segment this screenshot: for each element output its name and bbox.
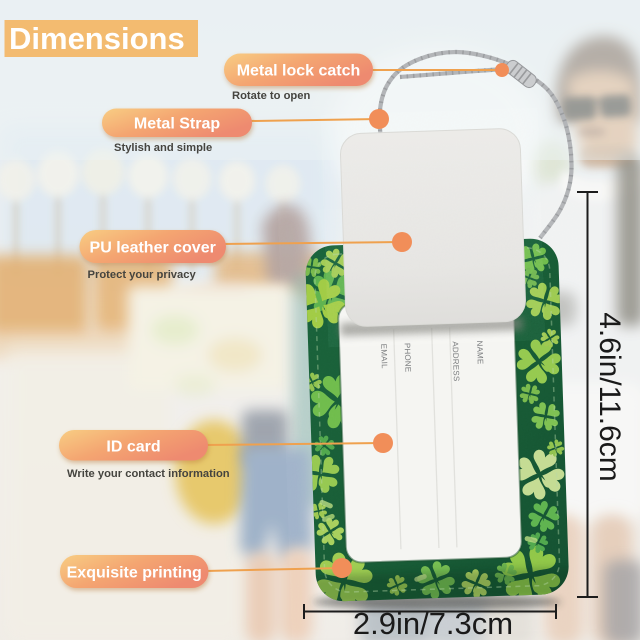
svg-text:Rotate to open: Rotate to open [232, 90, 310, 102]
svg-text:Exquisite printing: Exquisite printing [67, 565, 202, 582]
svg-text:2.9in/7.3cm: 2.9in/7.3cm [353, 606, 513, 640]
svg-text:Write your contact information: Write your contact information [67, 468, 230, 480]
svg-text:NAME: NAME [475, 340, 485, 364]
svg-text:ADDRESS: ADDRESS [451, 341, 461, 381]
svg-text:Stylish and simple: Stylish and simple [114, 142, 212, 154]
svg-text:EMAIL: EMAIL [379, 344, 389, 370]
svg-text:Protect your privacy: Protect your privacy [88, 269, 197, 281]
svg-text:4.6in/11.6cm: 4.6in/11.6cm [593, 312, 626, 482]
svg-text:Dimensions: Dimensions [9, 21, 185, 56]
svg-text:Metal lock catch: Metal lock catch [237, 63, 361, 80]
svg-text:Metal Strap: Metal Strap [134, 116, 220, 133]
svg-text:PU leather cover: PU leather cover [90, 240, 216, 257]
svg-text:ID card: ID card [106, 439, 160, 456]
svg-text:PHONE: PHONE [403, 343, 413, 373]
